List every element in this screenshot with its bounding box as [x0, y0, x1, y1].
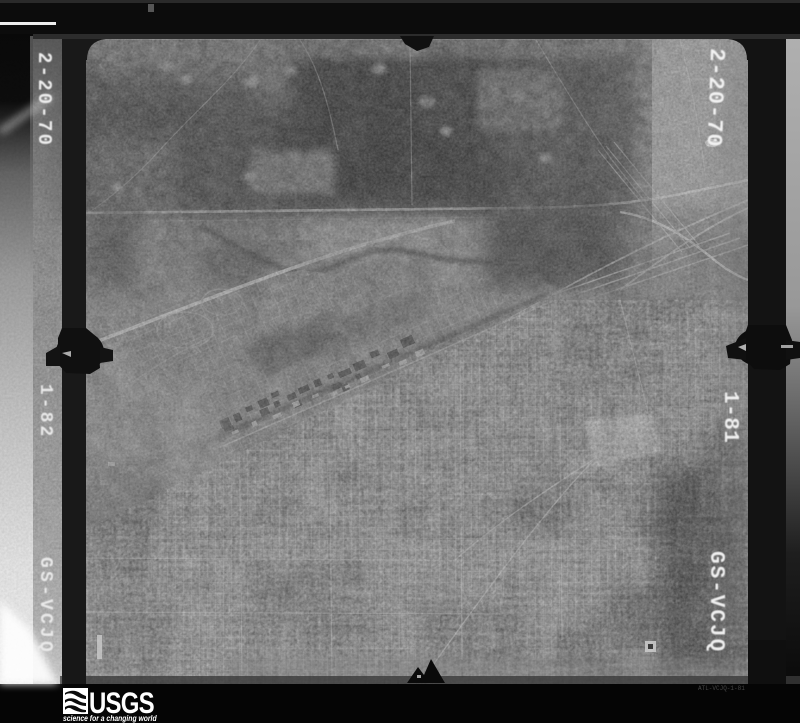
- svg-text:science for a changing world: science for a changing world: [63, 713, 157, 723]
- svg-text:1-82: 1-82: [35, 384, 55, 439]
- svg-text:ATL-VCJQ-1-81: ATL-VCJQ-1-81: [698, 685, 745, 692]
- svg-text:2-20-70: 2-20-70: [701, 48, 729, 148]
- svg-text:1-81: 1-81: [718, 391, 741, 443]
- svg-text:GS-VCJQ: GS-VCJQ: [704, 551, 727, 653]
- svg-text:GS-VCJQ: GS-VCJQ: [35, 557, 55, 655]
- svg-text:2-20-70: 2-20-70: [33, 52, 55, 147]
